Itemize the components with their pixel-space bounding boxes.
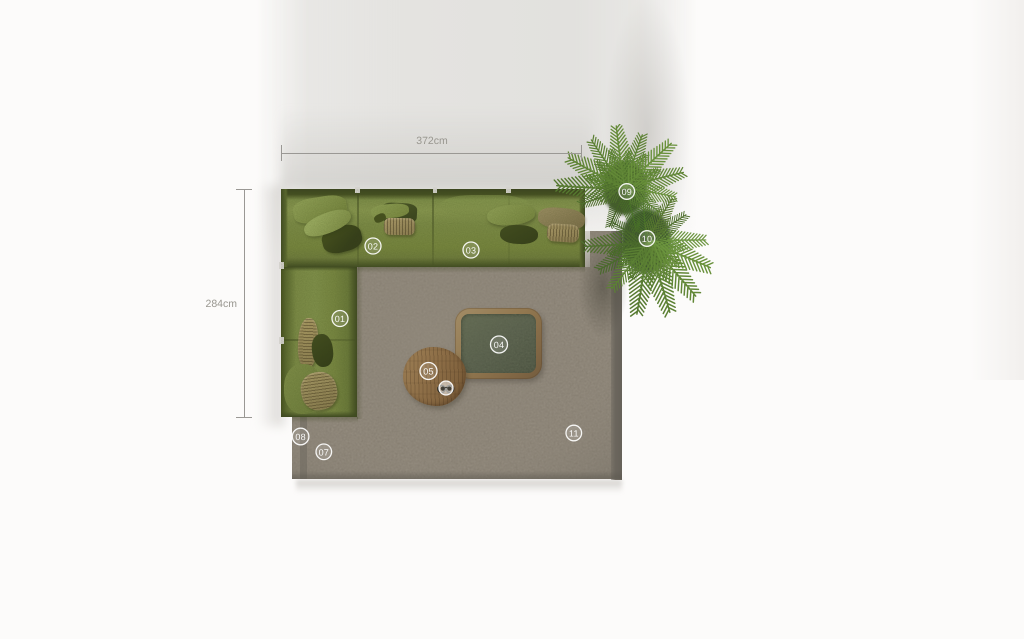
svg-text:05: 05 bbox=[423, 367, 433, 377]
svg-text:08: 08 bbox=[295, 432, 305, 442]
svg-text:02: 02 bbox=[368, 242, 378, 252]
svg-text:03: 03 bbox=[466, 246, 476, 256]
svg-text:04: 04 bbox=[494, 340, 504, 350]
svg-text:01: 01 bbox=[335, 314, 345, 324]
svg-text:10: 10 bbox=[642, 234, 652, 244]
svg-text:09: 09 bbox=[622, 187, 632, 197]
svg-text:07: 07 bbox=[319, 447, 329, 457]
svg-text:11: 11 bbox=[569, 429, 579, 439]
